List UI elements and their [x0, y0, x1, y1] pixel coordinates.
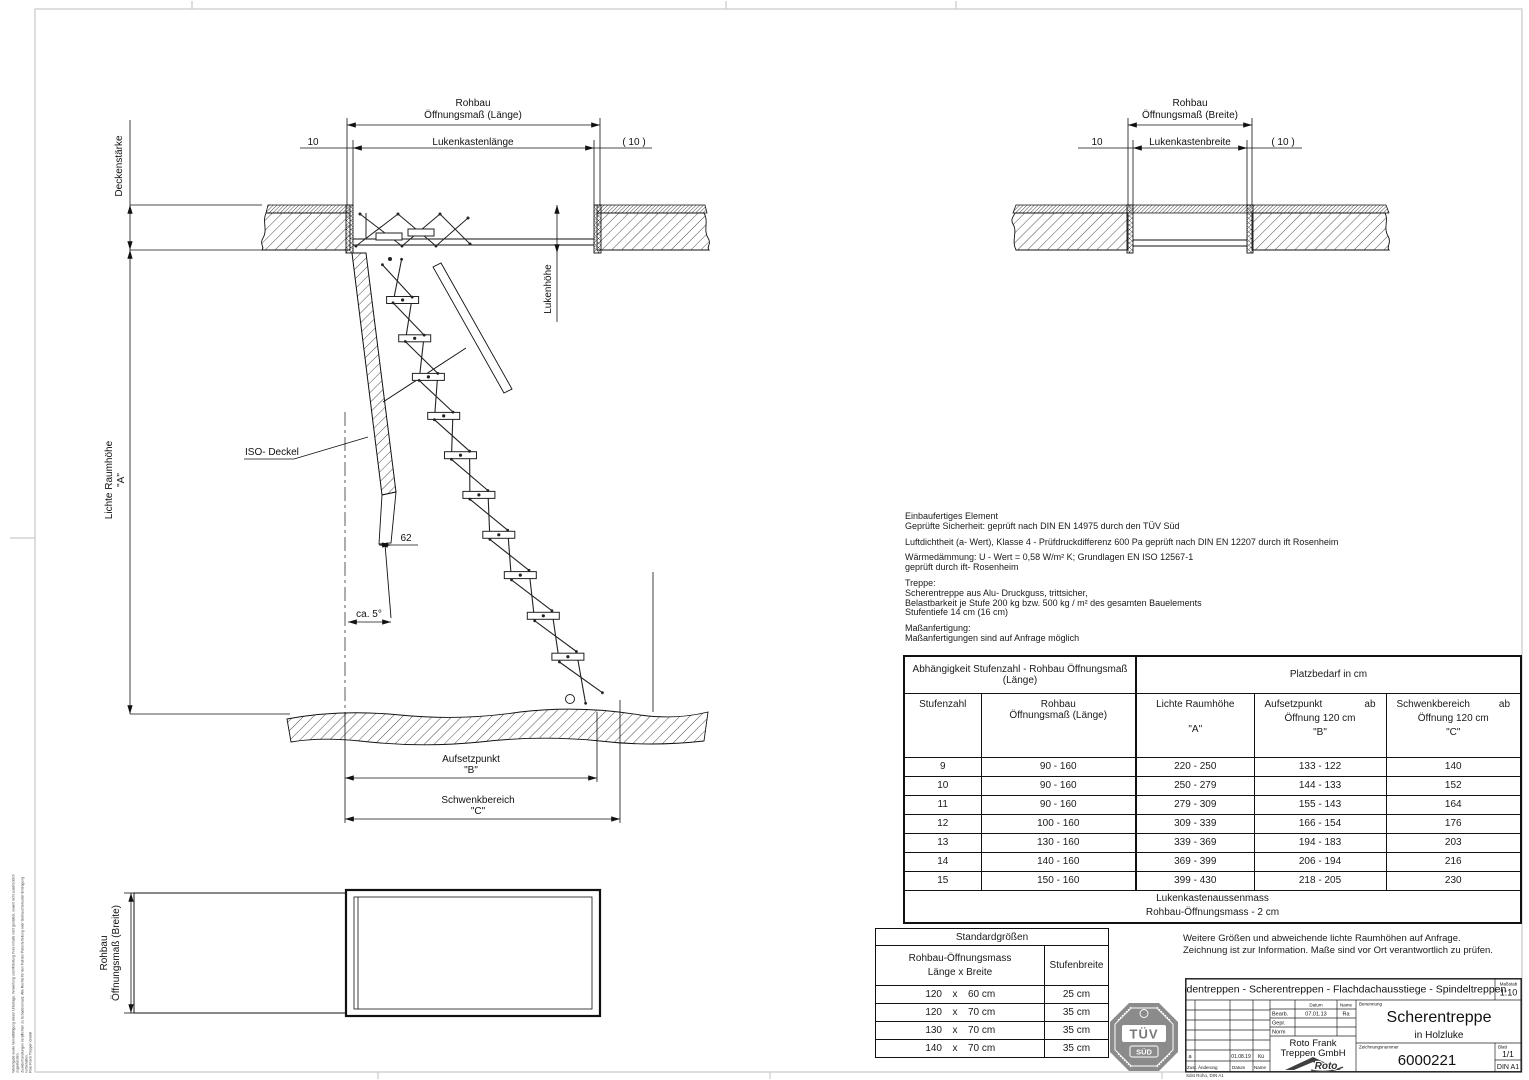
- spec-line: Maßanfertigungen sind auf Anfrage möglic…: [905, 634, 1365, 644]
- table-header-left: Abhängigkeit Stufenzahl - Rohbau Öffnung…: [904, 656, 1136, 693]
- dim-lukenhoehe: Lukenhöhe: [543, 264, 554, 314]
- col-stufenzahl: Stufenzahl: [904, 693, 981, 757]
- dim-ca5: ca. 5°: [356, 609, 382, 620]
- tuev-text: TÜV: [1130, 1027, 1159, 1042]
- zeichnungsnummer-label: Zeichnungsnummer: [1359, 1045, 1399, 1050]
- dim-rohbau-breite-l1: Rohbau: [1172, 98, 1207, 109]
- rev-index: a: [1188, 1054, 1192, 1060]
- dim-schwenkbereich-l1: Schwenkbereich: [441, 795, 514, 806]
- plan-view: Rohbau Öffnungsmaß (Breite): [99, 890, 600, 1016]
- roto-logo: Roto: [1285, 1057, 1343, 1072]
- spec-line: geprüft durch ift- Rosenheim: [905, 563, 1365, 573]
- section-view-length: Rohbau Öffnungsmaß (Länge) 10 Lukenkaste…: [104, 98, 709, 823]
- iso-lid-open: [352, 253, 396, 495]
- note-line: Zeichnung ist zur Information. Maße sind…: [1183, 945, 1493, 957]
- slab-top-band-right: [597, 205, 707, 213]
- col-raumhoehe: Lichte Raumhöhe"A": [1136, 693, 1254, 757]
- slab-left: [1012, 213, 1128, 250]
- col-aufsetzpunkt: Aufsetzpunktab Öffnung 120 cm"B": [1254, 693, 1386, 757]
- benennung-label: Benennung: [1359, 1002, 1383, 1007]
- sued-text: SÜD: [1136, 1048, 1152, 1057]
- table-footer: LukenkastenaussenmassRohbau-Öffnungsmass…: [904, 890, 1521, 923]
- std-row: 120x60 cm 25 cm: [876, 986, 1109, 1004]
- luke-wall-left: [346, 205, 353, 253]
- col-rohbau: RohbauÖffnungsmaß (Länge): [981, 693, 1136, 757]
- datum2-label: Datum: [1232, 1065, 1246, 1070]
- zust-label: Zust.: [1187, 1065, 1197, 1070]
- spec-line: Geprüfte Sicherheit: geprüft nach DIN EN…: [905, 522, 1365, 532]
- dim-10-right: ( 10 ): [622, 137, 645, 148]
- col-schwenkbereich: Schwenkbereichab Öffnung 120 cm"C": [1386, 693, 1521, 757]
- drawing-sheet: Rohbau Öffnungsmaß (Länge) 10 Lukenkaste…: [0, 0, 1529, 1080]
- dim-aufsetzpunkt-l2: "B": [464, 765, 478, 776]
- dim-lukenkastenbreite: Lukenkastenbreite: [1149, 137, 1231, 148]
- luke-wall-right: [1247, 205, 1253, 253]
- std-row: 120x70 cm 35 cm: [876, 1004, 1109, 1022]
- gepr-label: Gepr.: [1272, 1021, 1286, 1027]
- dim-10-right: ( 10 ): [1271, 137, 1294, 148]
- name-label: Name: [1340, 1003, 1353, 1008]
- std-col1: Rohbau-ÖffnungsmassLänge x Breite: [876, 946, 1045, 986]
- sheet-format: DIN A1: [1497, 1064, 1519, 1071]
- product-line: Bodentreppen - Scherentreppen - Flachdac…: [1185, 984, 1507, 996]
- label-iso-deckel: ISO- Deckel: [245, 447, 299, 458]
- table-row: 1190 - 160279 - 309155 - 143164: [904, 795, 1521, 814]
- drawing-title: Scherentreppe: [1387, 1009, 1492, 1026]
- std-row: 140x70 cm 35 cm: [876, 1040, 1109, 1058]
- spec-line: Luftdichtheit (a- Wert), Klasse 4 - Prüf…: [905, 538, 1365, 548]
- table-row: 14140 - 160369 - 399206 - 194216: [904, 852, 1521, 871]
- dim-aufsetzpunkt-l1: Aufsetzpunkt: [442, 754, 500, 765]
- luke-wall-right: [594, 205, 601, 253]
- step-count-table: Abhängigkeit Stufenzahl - Rohbau Öffnung…: [903, 655, 1522, 924]
- scale-value: 1:10: [1500, 988, 1518, 998]
- dim-schwenkbereich-l2: "C": [471, 806, 486, 817]
- drawing-subtitle: in Holzluke: [1415, 1030, 1464, 1041]
- norm-label: Norm: [1272, 1030, 1286, 1036]
- table-row: 15150 - 160399 - 430218 - 205230: [904, 871, 1521, 890]
- aenderung-label: Änderung: [1198, 1064, 1218, 1070]
- dim-deckenstaerke: Deckenstärke: [114, 135, 125, 197]
- rev-name: Kü: [1258, 1054, 1264, 1060]
- plan-luke-frame-inner: [354, 897, 592, 1009]
- section-view-width: Rohbau Öffnungsmaß (Breite) 10 Lukenkast…: [1012, 98, 1390, 253]
- spec-text-block: Einbaufertiges Element Geprüfte Sicherhe…: [905, 512, 1365, 644]
- luke-wall-left: [1127, 205, 1133, 253]
- dim-lichte-raumhoehe-l2: "A": [116, 473, 127, 487]
- table-row: 1090 - 160250 - 279144 - 133152: [904, 776, 1521, 795]
- title-block-footnote: Sdst Roho, DIN A1: [1186, 1073, 1224, 1078]
- datum-label: Datum: [1309, 1003, 1323, 1008]
- drawing-number: 6000221: [1398, 1052, 1456, 1069]
- slab-top-band: [1013, 205, 1389, 213]
- bearb-label: Bearb.: [1272, 1012, 1289, 1018]
- std-row: 130x70 cm 35 cm: [876, 1022, 1109, 1040]
- spec-line: Stufentiefe 14 cm (16 cm): [905, 608, 1365, 618]
- table-row: 12100 - 160309 - 339166 - 154176: [904, 814, 1521, 833]
- dim-rohbau-breite-l2: Öffnungsmaß (Breite): [1142, 109, 1238, 121]
- standard-sizes-table: Standardgrößen Rohbau-ÖffnungsmassLänge …: [875, 928, 1109, 1058]
- stair-foot-wheel: [566, 695, 575, 704]
- slab-top-band-left: [266, 205, 350, 213]
- table-row: 13130 - 160339 - 369194 - 183203: [904, 833, 1521, 852]
- scissor-stair-mechanism: [381, 258, 604, 705]
- dim-rohbau-laenge-l2: Öffnungsmaß (Länge): [424, 109, 522, 121]
- plan-luke-frame-outer: [346, 890, 600, 1016]
- rev-datum: 01.08.19: [1231, 1054, 1251, 1060]
- note-line: Weitere Größen und abweichende lichte Ra…: [1183, 933, 1493, 945]
- std-title: Standardgrößen: [876, 929, 1109, 946]
- floor-hatch: [287, 709, 708, 745]
- plan-opening-rect: [134, 893, 346, 1013]
- dim-62: 62: [400, 533, 412, 544]
- std-col2: Stufenbreite: [1045, 946, 1109, 986]
- title-block: Bodentreppen - Scherentreppen - Flachdac…: [1185, 978, 1522, 1078]
- slab-right: [1252, 213, 1389, 250]
- tuev-sued-badge: TÜV SÜD: [1108, 1001, 1180, 1078]
- sheet-number: 1/1: [1502, 1049, 1514, 1059]
- info-notes: Weitere Größen und abweichende lichte Ra…: [1183, 933, 1493, 957]
- table-row: 990 - 160220 - 250133 - 122140: [904, 757, 1521, 776]
- bearb-datum: 07.01.13: [1305, 1012, 1326, 1018]
- slab-left: [262, 213, 350, 250]
- bearb-name: Ra: [1342, 1012, 1350, 1018]
- dim-plan-l1: Rohbau: [99, 935, 110, 970]
- table-header-right: Platzbedarf in cm: [1136, 656, 1521, 693]
- name2-label: Name: [1254, 1065, 1267, 1070]
- copyright-margin-note: Weitergabe sowie Vervielfältigung dieser…: [11, 873, 32, 1073]
- dim-10-left: 10: [1091, 137, 1103, 148]
- massstab-label: Maßstab: [1500, 982, 1518, 987]
- dim-10-left: 10: [307, 137, 319, 148]
- dim-plan-l2: Öffnungsmaß (Breite): [110, 905, 122, 1001]
- slab-right: [597, 213, 709, 250]
- folded-scissor-bunch: [356, 214, 470, 246]
- svg-text:Roto: Roto: [1315, 1061, 1338, 1072]
- dim-lukenkastenlaenge: Lukenkastenlänge: [432, 137, 514, 148]
- dim-lichte-raumhoehe-l1: Lichte Raumhöhe: [104, 440, 115, 519]
- dim-rohbau-laenge-l1: Rohbau: [455, 98, 490, 109]
